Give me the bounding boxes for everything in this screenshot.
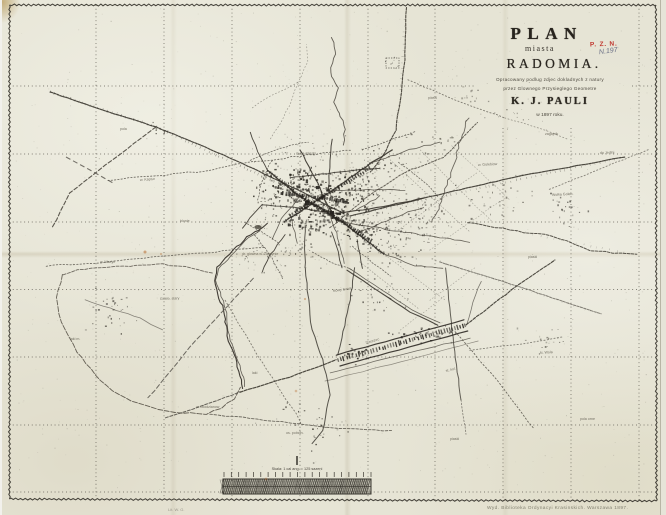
svg-text:pola: pola <box>120 127 127 131</box>
svg-text:Wolka Goleb.: Wolka Goleb. <box>552 192 574 197</box>
svg-text:piaski: piaski <box>428 96 438 100</box>
svg-text:piaski: piaski <box>528 255 537 259</box>
svg-text:Stare Miasto: Stare Miasto <box>296 151 316 156</box>
svg-text:w. Golebiow: w. Golebiow <box>478 162 498 167</box>
svg-text:os. poludn.: os. poludn. <box>286 431 304 435</box>
svg-text:Skala: 1 cal ang. = 125 sazeni: Skala: 1 cal ang. = 125 sazeni <box>272 467 323 471</box>
svg-text:dr. glowna w. Zamlynie: dr. glowna w. Zamlynie <box>242 252 278 256</box>
svg-text:Nowy Swiat: Nowy Swiat <box>333 286 352 293</box>
svg-text:w. Kaptur: w. Kaptur <box>140 177 156 182</box>
svg-text:Goleb. stary: Goleb. stary <box>160 296 180 301</box>
svg-text:pola orne: pola orne <box>580 417 595 421</box>
svg-text:piaski: piaski <box>450 437 459 441</box>
svg-text:laki: laki <box>252 371 258 375</box>
svg-text:w. Mlodzianow: w. Mlodzianow <box>196 405 220 409</box>
svg-text:laki m.: laki m. <box>70 337 80 341</box>
svg-text:st. kol.: st. kol. <box>445 367 456 373</box>
svg-text:w. Wacyn: w. Wacyn <box>100 260 115 264</box>
svg-text:do Jedlni: do Jedlni <box>600 150 615 155</box>
svg-text:N. Wola: N. Wola <box>540 350 553 355</box>
svg-text:zagajnik: zagajnik <box>545 132 558 136</box>
svg-text:blonie: blonie <box>180 219 190 223</box>
